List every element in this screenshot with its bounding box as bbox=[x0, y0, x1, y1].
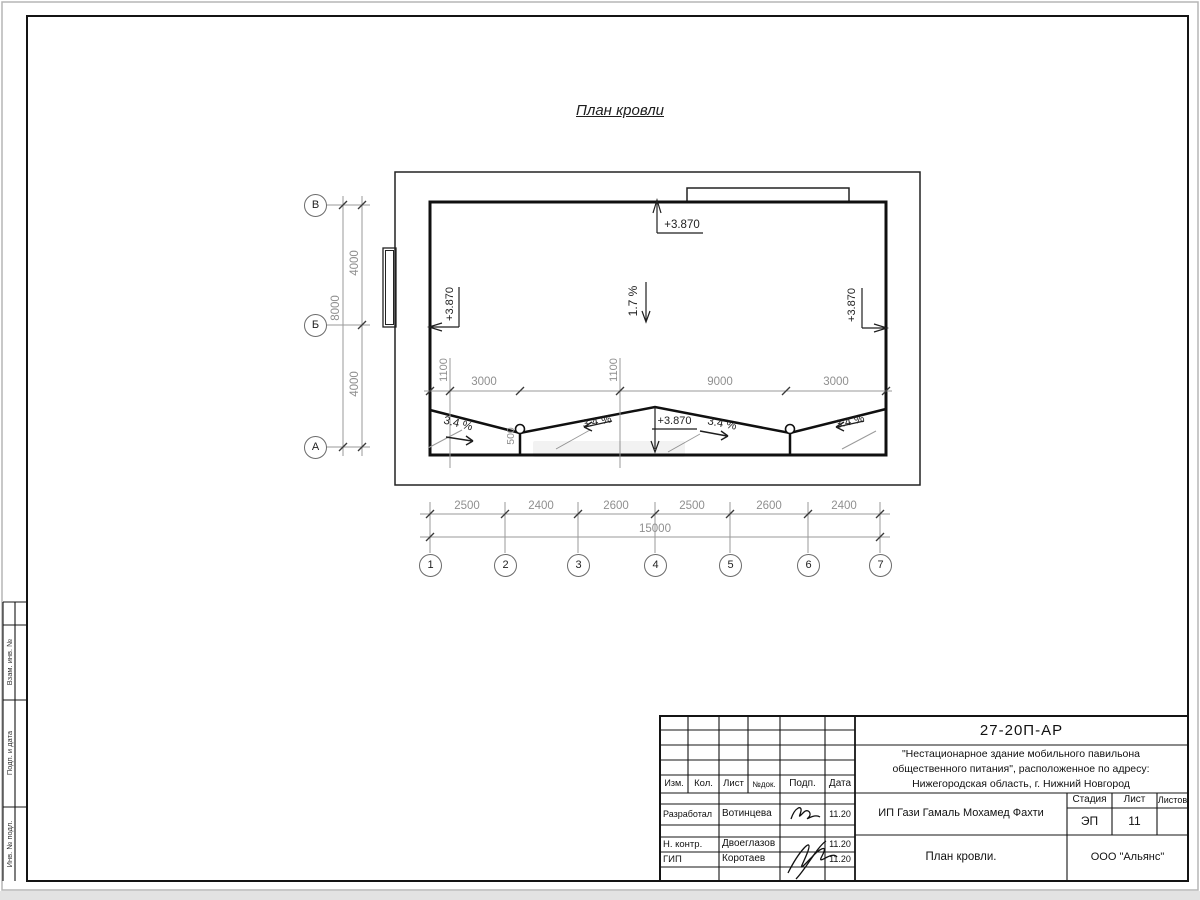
axis-bubble-a: А bbox=[304, 436, 327, 459]
project-name: "Нестационарное здание мобильного павиль… bbox=[871, 747, 1171, 792]
row-name-ncontr: Двоеглазов bbox=[722, 838, 775, 849]
dim-8000: 8000 bbox=[330, 286, 342, 330]
column-bubble-4: 4 bbox=[644, 554, 667, 577]
sheet-label: Лист bbox=[1112, 794, 1157, 805]
column-bubble-2: 2 bbox=[494, 554, 517, 577]
axis-bubble-v: В bbox=[304, 194, 327, 217]
dim-1100-b: 1100 bbox=[608, 350, 620, 390]
row-date-gip: 11.20 bbox=[825, 854, 855, 864]
dim-4000-bottom: 4000 bbox=[349, 362, 361, 406]
dim-15000: 15000 bbox=[630, 523, 680, 535]
dim-2400-b: 2400 bbox=[819, 500, 869, 512]
paper-shadow bbox=[0, 891, 1200, 900]
col-header-data: Дата bbox=[825, 778, 855, 789]
doc-number: 27-20П-АР bbox=[855, 722, 1188, 739]
stage-value: ЭП bbox=[1067, 814, 1112, 828]
page-title: План кровли bbox=[540, 102, 700, 119]
elevation-mark-right: +3.870 bbox=[846, 283, 858, 327]
dim-2500-b: 2500 bbox=[667, 500, 717, 512]
drain-funnel bbox=[786, 425, 795, 434]
elevation-mark-top: +3.870 bbox=[660, 219, 704, 231]
row-name-gip: Коротаев bbox=[722, 853, 765, 864]
column-bubble-1: 1 bbox=[419, 554, 442, 577]
stage-label: Стадия bbox=[1067, 794, 1112, 805]
dim-2600-b: 2600 bbox=[744, 500, 794, 512]
signature-votintseva bbox=[791, 808, 820, 819]
main-slope-label: 1.7 % bbox=[626, 279, 640, 323]
watermark bbox=[533, 441, 685, 457]
strip-label-podp: Подп. и дата bbox=[3, 718, 15, 788]
building-outline bbox=[383, 172, 920, 485]
column-bubble-7: 7 bbox=[869, 554, 892, 577]
dim-3000-a: 3000 bbox=[462, 376, 506, 388]
col-header-kol: Кол. bbox=[688, 778, 719, 789]
dim-2400-a: 2400 bbox=[516, 500, 566, 512]
company-name: ООО "Альянс" bbox=[1067, 851, 1188, 863]
left-protrusion bbox=[383, 248, 396, 327]
col-header-list: Лист bbox=[719, 778, 748, 789]
col-header-podp: Подп. bbox=[780, 778, 825, 789]
dim-500: 500 bbox=[505, 416, 517, 456]
elevation-mark-ridge: +3.870 bbox=[652, 415, 697, 427]
axis-bubble-b: Б bbox=[304, 314, 327, 337]
row-date-ncontr: 11.20 bbox=[825, 839, 855, 849]
column-bubble-5: 5 bbox=[719, 554, 742, 577]
column-bubble-3: 3 bbox=[567, 554, 590, 577]
dim-2500-a: 2500 bbox=[442, 500, 492, 512]
col-header-izm: Изм. bbox=[660, 778, 688, 788]
canopy bbox=[687, 188, 849, 202]
dim-1100-a: 1100 bbox=[438, 350, 450, 390]
col-header-ndoc: №док. bbox=[748, 780, 780, 789]
row-role-gip: ГИП bbox=[663, 854, 682, 865]
elevation-mark-left: +3.870 bbox=[444, 282, 456, 326]
row-date-developed: 11.20 bbox=[825, 809, 855, 819]
strip-label-vzam: Взам. инв. № bbox=[3, 627, 15, 697]
drawing-title: План кровли. bbox=[860, 851, 1062, 863]
row-role-ncontr: Н. контр. bbox=[663, 839, 702, 850]
sheets-label: Листов bbox=[1157, 795, 1188, 805]
drawing-sheet: План кровли +3.870 +3.870 +3.870 +3.870 … bbox=[0, 0, 1200, 900]
client-name: ИП Гази Гамаль Мохамед Фахти bbox=[860, 807, 1062, 819]
dim-3000-b: 3000 bbox=[814, 376, 858, 388]
strip-label-inv: Инв. № подл. bbox=[3, 809, 15, 879]
row-role-developed: Разработал bbox=[663, 809, 712, 819]
row-name-developed: Вотинцева bbox=[722, 808, 772, 819]
dim-9000: 9000 bbox=[698, 376, 742, 388]
dim-2600-a: 2600 bbox=[591, 500, 641, 512]
column-bubble-6: 6 bbox=[797, 554, 820, 577]
dim-4000-top: 4000 bbox=[349, 241, 361, 285]
sheet-number: 11 bbox=[1112, 814, 1157, 828]
